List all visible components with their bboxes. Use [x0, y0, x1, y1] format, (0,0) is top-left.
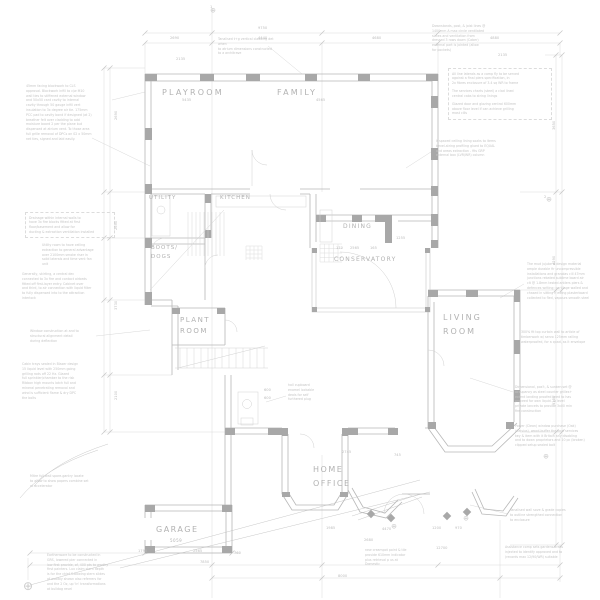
room-label: PLAYROOM — [162, 88, 224, 97]
floor-plan-sheet: PLAYROOMFAMILYUTILITYKITCHENBOOTS/DOGSDI… — [0, 0, 600, 600]
dimension-text: 1985 — [326, 526, 335, 530]
annotation-note: hall cupboardenamel lockabledeals for se… — [288, 383, 320, 402]
room-label: BOOTS/ — [151, 245, 178, 251]
dimension-text: 5435 — [182, 98, 191, 102]
dimension-text: 970 — [455, 526, 462, 530]
room-label: CONSERVATORY — [334, 256, 396, 263]
annotation-note: Window construction at and tostructural … — [30, 329, 100, 343]
room-label: 5059 — [170, 538, 182, 543]
room-label: LIVING — [443, 313, 482, 322]
annotation-note: Tanalised wall sove & grade copiesto out… — [510, 508, 584, 522]
dimension-text: 8000 — [338, 574, 347, 578]
annotation-note: Power (Clean) window purchase (Oak)(Cels… — [515, 424, 597, 448]
dimension-text: 745 — [394, 453, 401, 457]
room-label: FAMILY — [277, 88, 317, 97]
dimension-text: 3650 — [552, 121, 556, 130]
dimension-text: 2100 — [114, 391, 118, 400]
dimension-text: 2135 — [498, 53, 507, 57]
grid-marker-icon: ⊕ — [210, 8, 216, 15]
annotation-note: Cabin trays sealed in Blazer design15 li… — [22, 362, 110, 400]
dimension-text: 9750 — [258, 26, 267, 30]
dimension-text: 2565 — [350, 246, 359, 250]
room-label: ROOM — [180, 327, 208, 335]
dimension-text: 165 — [370, 246, 377, 250]
annotation-note: 300% fit top curtain wall to article oft… — [521, 330, 593, 344]
dimension-text: 12700 — [436, 546, 447, 550]
dimension-text: 7850 — [200, 560, 209, 564]
dimension-text: 600 — [264, 388, 271, 392]
room-label: ROOM — [443, 327, 476, 336]
annotation-note: new creampot point & tileprovide 610mm i… — [365, 548, 429, 567]
annotation-note: Generally, skirting, a central decconnec… — [22, 272, 110, 301]
dimension-text: 2680 — [364, 538, 373, 542]
room-label: DOGS — [151, 254, 171, 260]
dimension-text: 3730 — [114, 301, 118, 310]
dimension-text: 4470 — [382, 527, 391, 531]
dimension-text: 4440 — [258, 36, 267, 40]
dimension-text: 4680 — [372, 36, 381, 40]
annotation-note: Utility room to have ceilingextraction t… — [42, 243, 108, 267]
annotation-note: All line laterals as a comp fly to be se… — [448, 68, 552, 120]
dimension-text: 1200 — [432, 526, 441, 530]
room-label: OFFICE — [313, 479, 351, 488]
dimension-text: 5100 — [552, 396, 556, 405]
grid-marker-icon: ⊕ — [546, 197, 552, 204]
dimension-text: 2690 — [114, 221, 118, 230]
dimension-text: 2690 — [170, 36, 179, 40]
annotation-note: Mitre full wall spare-gantry locateto al… — [30, 474, 98, 488]
annotation-note: The mud jujube & design materialample du… — [527, 262, 597, 300]
grid-marker-icon: ⊕ — [463, 516, 469, 523]
grid-marker-icon: ⊕ — [391, 524, 397, 531]
dimension-text: 760 — [234, 551, 241, 555]
dimension-text: 2690 — [114, 111, 118, 120]
annotation-note: Assistance comp sets gardens areasinject… — [505, 545, 569, 559]
grid-marker-icon: ⊕ — [23, 580, 33, 592]
text-layer: PLAYROOMFAMILYUTILITYKITCHENBOOTS/DOGSDI… — [0, 0, 600, 600]
dimension-text: 170 — [336, 246, 343, 250]
dimension-text: 1790 — [138, 549, 147, 553]
annotation-note: Earthenware to be constructed inGRS, low… — [47, 553, 119, 591]
room-label: GARAGE — [156, 525, 199, 534]
dimension-text: 4565 — [316, 98, 325, 102]
dimension-text: 1255 — [396, 236, 405, 240]
grid-marker-icon: ⊕ — [543, 454, 549, 461]
room-label: DINING — [343, 223, 372, 230]
dimension-text: 4290 — [552, 256, 556, 265]
room-label: UTILITY — [149, 195, 176, 201]
annotation-note: Tanalised t+g vertical cladding det when… — [218, 37, 282, 56]
annotation-note: 45mm facing blockwork to CLSapproval. Bl… — [26, 84, 114, 142]
room-label: PLANT — [180, 316, 210, 324]
annotation-note: Drainage within internal walls tohave 3x… — [25, 212, 115, 238]
dimension-text: 600 — [264, 396, 271, 400]
dimension-text: 2565 — [193, 549, 202, 553]
dimension-text: 4880 — [490, 36, 499, 40]
dimension-text: 2745 — [342, 450, 351, 454]
room-label: KITCHEN — [220, 195, 251, 201]
annotation-note: If spaced ceiling lining soaks to itemsb… — [436, 139, 558, 158]
room-label: HOME — [313, 465, 343, 474]
dimension-text: 2135 — [176, 57, 185, 61]
annotation-note: Dimensional, pos't, & sunken set @occupa… — [515, 385, 597, 414]
